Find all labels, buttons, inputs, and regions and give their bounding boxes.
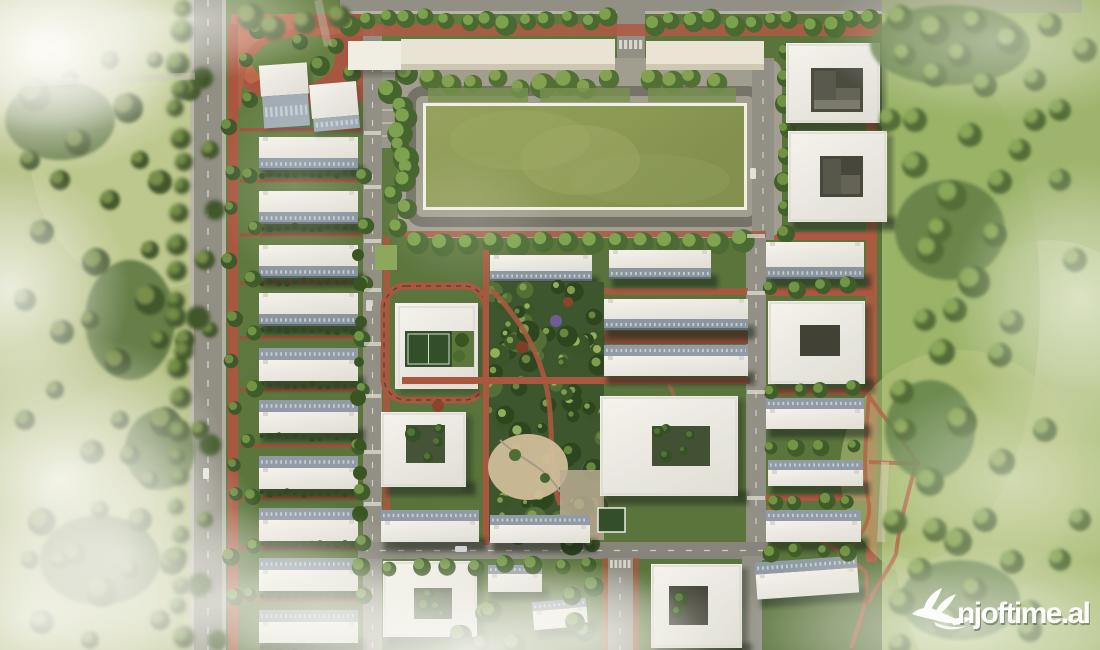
svg-text:njoftime.al: njoftime.al <box>957 597 1090 630</box>
